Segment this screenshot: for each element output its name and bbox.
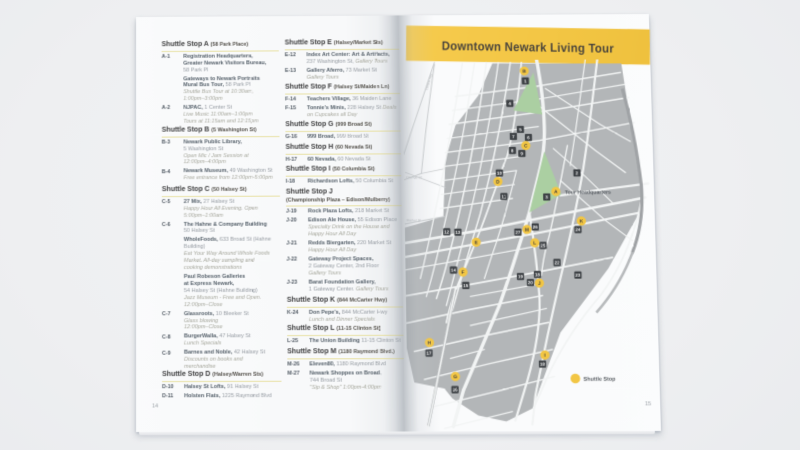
svg-text:16: 16 (452, 387, 458, 392)
svg-text:26: 26 (532, 224, 538, 229)
svg-text:G: G (453, 374, 457, 379)
svg-text:19: 19 (517, 274, 523, 279)
svg-text:I: I (544, 352, 545, 357)
svg-text:11: 11 (501, 194, 506, 199)
svg-text:10: 10 (496, 170, 502, 175)
svg-text:M: M (524, 227, 528, 232)
svg-text:E: E (474, 239, 477, 244)
svg-text:L: L (533, 240, 536, 245)
svg-text:25: 25 (540, 243, 546, 248)
svg-text:12: 12 (444, 229, 450, 234)
svg-text:15: 15 (463, 283, 469, 288)
svg-text:22: 22 (554, 260, 560, 265)
svg-text:14: 14 (450, 267, 456, 272)
svg-text:13: 13 (455, 229, 461, 234)
svg-text:23: 23 (575, 272, 581, 277)
svg-text:24: 24 (575, 227, 581, 232)
svg-text:18: 18 (534, 272, 540, 277)
svg-text:F: F (461, 269, 464, 274)
svg-text:Tour Headquarters: Tour Headquarters (564, 189, 610, 195)
svg-text:Shuttle Stop: Shuttle Stop (583, 376, 615, 382)
svg-text:18: 18 (539, 361, 545, 366)
svg-text:20: 20 (527, 280, 533, 285)
svg-text:27: 27 (515, 229, 521, 234)
